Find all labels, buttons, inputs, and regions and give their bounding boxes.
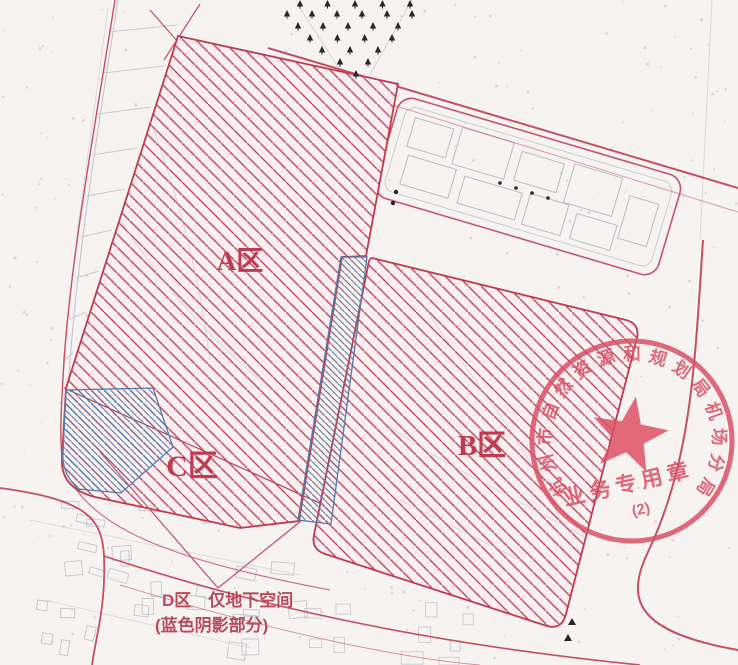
speck xyxy=(360,16,362,18)
speck xyxy=(71,609,73,611)
speck xyxy=(84,534,86,536)
speck xyxy=(51,327,54,330)
speck xyxy=(68,184,70,186)
stamp-arc-char: 和 xyxy=(623,344,641,364)
speck xyxy=(708,44,710,46)
speck xyxy=(527,91,530,94)
speck xyxy=(345,53,347,55)
speck xyxy=(654,520,657,523)
speck xyxy=(423,10,426,13)
speck xyxy=(298,636,301,639)
speck xyxy=(1,95,4,98)
speck xyxy=(29,384,31,386)
speck xyxy=(711,92,714,95)
speck xyxy=(3,29,4,30)
speck xyxy=(580,208,583,211)
speck xyxy=(701,319,704,322)
speck xyxy=(47,136,49,138)
speck xyxy=(660,66,662,68)
speck xyxy=(643,196,645,198)
speck xyxy=(454,4,456,6)
speck xyxy=(668,306,671,309)
speck xyxy=(123,11,125,13)
speck xyxy=(17,370,19,372)
speck xyxy=(713,247,715,249)
speck xyxy=(107,547,110,550)
speck xyxy=(622,1,624,3)
speck xyxy=(724,120,726,122)
speck xyxy=(472,159,475,162)
speck xyxy=(606,554,609,557)
speck xyxy=(724,88,727,91)
speck xyxy=(664,4,667,7)
speck xyxy=(50,339,52,341)
speck xyxy=(419,599,421,601)
speck xyxy=(688,280,691,283)
speck xyxy=(716,90,719,93)
speck xyxy=(644,46,647,49)
speck xyxy=(82,119,85,122)
speck xyxy=(700,18,703,21)
speck xyxy=(70,305,72,307)
stamp-arc-char: 场 xyxy=(708,427,729,445)
speck xyxy=(116,573,118,575)
speck xyxy=(46,362,49,365)
speck xyxy=(259,549,261,551)
speck xyxy=(713,168,715,170)
speck xyxy=(38,183,40,185)
speck xyxy=(439,82,441,84)
speck xyxy=(669,556,671,558)
speck xyxy=(142,517,144,519)
speck xyxy=(493,657,496,660)
speck xyxy=(134,103,137,106)
speck xyxy=(683,176,686,179)
speck xyxy=(531,107,534,110)
speck xyxy=(691,159,693,161)
speck xyxy=(672,539,675,542)
zone-c-label: C区 xyxy=(166,450,218,483)
underground-note-line2: (蓝色阴影部分) xyxy=(155,615,268,635)
speck xyxy=(36,261,38,263)
speck xyxy=(39,47,42,50)
speck xyxy=(13,506,15,508)
speck xyxy=(626,557,628,559)
speck xyxy=(469,236,472,239)
speck xyxy=(51,52,53,54)
speck xyxy=(623,121,625,123)
speck xyxy=(582,296,584,298)
speck xyxy=(54,198,56,200)
speck xyxy=(497,62,499,64)
speck xyxy=(101,620,103,622)
speck xyxy=(99,79,101,81)
speck xyxy=(640,375,642,377)
speck xyxy=(582,585,583,586)
speck xyxy=(234,587,236,589)
speck xyxy=(109,502,112,505)
speck xyxy=(735,202,738,205)
speck xyxy=(388,179,390,181)
speck xyxy=(520,50,522,52)
speck xyxy=(35,207,37,209)
speck xyxy=(1,383,3,385)
speck xyxy=(40,132,42,134)
speck xyxy=(9,285,12,288)
speck xyxy=(2,516,4,518)
speck xyxy=(19,492,21,494)
speck xyxy=(716,347,719,350)
speck xyxy=(504,635,506,637)
underground-note-line1: D区 仅地下空间 xyxy=(162,590,293,610)
speck xyxy=(556,253,559,256)
speck xyxy=(557,286,560,289)
speck xyxy=(390,586,393,589)
speck xyxy=(41,421,42,422)
speck xyxy=(674,36,676,38)
speck xyxy=(391,592,393,594)
speck xyxy=(93,616,96,619)
speck xyxy=(694,76,697,79)
speck xyxy=(171,560,173,562)
speck xyxy=(26,313,29,316)
speck xyxy=(315,609,317,611)
speck xyxy=(290,33,293,36)
speck xyxy=(663,648,665,650)
speck xyxy=(217,529,220,532)
speck xyxy=(32,543,33,544)
speck xyxy=(506,86,508,88)
speck xyxy=(506,252,509,255)
speck xyxy=(124,49,127,52)
zone-b-label: B区 xyxy=(458,430,506,462)
map-svg: A区 B区 C区 D区 仅地下空间 (蓝色阴影部分) 杭州市自然资源和规划局机场… xyxy=(0,0,738,665)
speck xyxy=(454,145,456,147)
speck xyxy=(583,607,585,609)
speck xyxy=(626,274,629,277)
speck xyxy=(21,505,24,508)
speck xyxy=(569,220,572,223)
speck xyxy=(628,292,631,295)
speck xyxy=(474,16,476,18)
speck xyxy=(1,194,3,196)
speck xyxy=(436,632,438,634)
speck xyxy=(624,546,626,548)
speck xyxy=(598,191,600,193)
speck xyxy=(728,547,730,549)
speck xyxy=(588,211,591,214)
speck xyxy=(464,276,465,277)
speck xyxy=(625,190,627,192)
speck xyxy=(364,588,366,590)
zone-a-label: A区 xyxy=(217,246,264,276)
speck xyxy=(630,378,632,380)
speck xyxy=(646,63,649,66)
speck xyxy=(669,186,671,188)
speck xyxy=(403,590,406,593)
stamp-arc-char: 市 xyxy=(535,427,556,445)
speck xyxy=(72,117,75,120)
speck xyxy=(412,609,414,611)
speck xyxy=(605,32,608,35)
speck xyxy=(407,659,409,661)
speck xyxy=(24,452,25,453)
speck xyxy=(13,256,16,259)
speck xyxy=(26,86,28,88)
speck xyxy=(672,644,674,646)
speck xyxy=(495,85,498,88)
speck xyxy=(59,401,61,403)
plan-map: A区 B区 C区 D区 仅地下空间 (蓝色阴影部分) 杭州市自然资源和规划局机场… xyxy=(0,0,738,665)
speck xyxy=(42,45,44,47)
speck xyxy=(624,192,625,193)
speck xyxy=(690,48,692,50)
speck xyxy=(71,633,73,635)
speck xyxy=(416,203,418,205)
speck xyxy=(52,16,54,18)
speck xyxy=(405,629,408,632)
speck xyxy=(466,606,469,609)
speck xyxy=(489,15,492,18)
speck xyxy=(23,311,26,314)
speck xyxy=(70,524,72,526)
speck xyxy=(207,559,208,560)
speck xyxy=(101,9,103,11)
speck xyxy=(692,112,693,113)
speck xyxy=(578,641,580,643)
speck xyxy=(285,50,288,53)
speck xyxy=(670,207,672,209)
speck xyxy=(40,178,42,180)
speck xyxy=(473,56,476,59)
speck xyxy=(65,178,67,180)
speck xyxy=(346,570,349,573)
speck xyxy=(651,110,653,112)
speck xyxy=(678,616,680,618)
speck xyxy=(705,192,707,194)
speck xyxy=(321,611,323,613)
speck xyxy=(49,535,51,537)
speck xyxy=(400,15,402,17)
speck xyxy=(566,179,568,181)
speck xyxy=(678,638,681,641)
